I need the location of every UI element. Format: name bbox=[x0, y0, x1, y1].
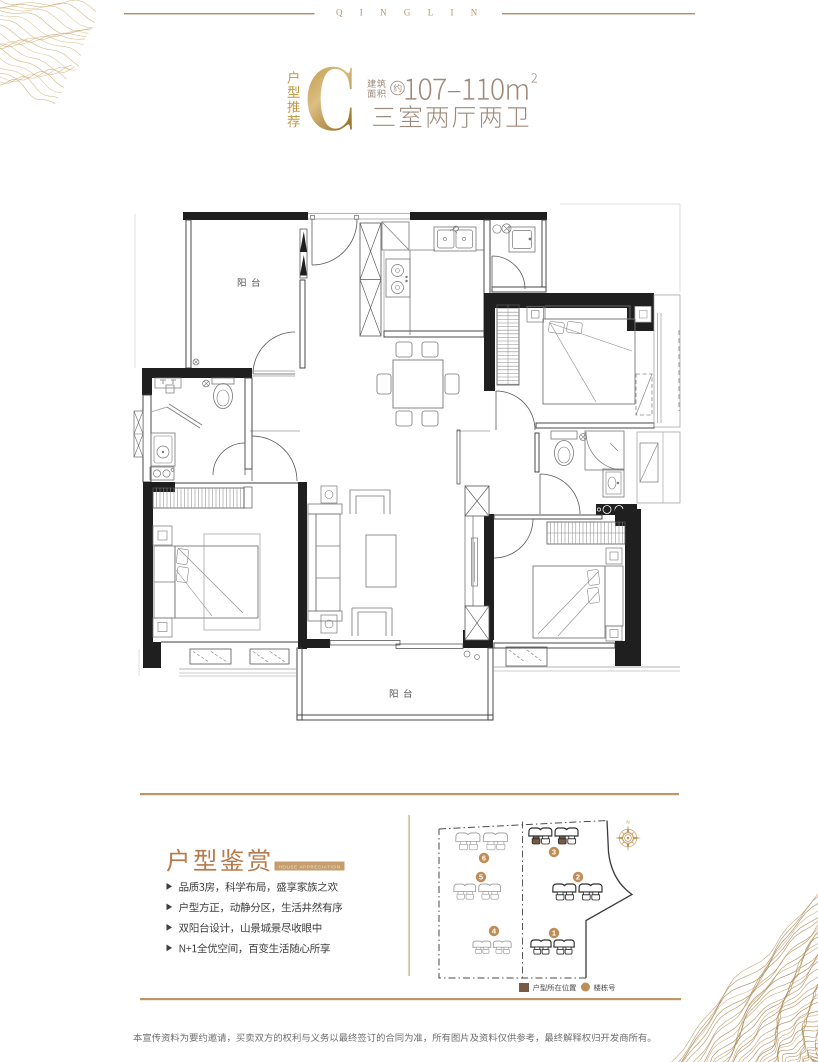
svg-text:HOUSE APPRECIATION: HOUSE APPRECIATION bbox=[278, 864, 340, 869]
svg-text:N: N bbox=[626, 820, 629, 825]
svg-text:5: 5 bbox=[479, 873, 483, 882]
svg-text:3: 3 bbox=[552, 848, 556, 857]
svg-text:2: 2 bbox=[576, 873, 580, 882]
svg-text:QINGLIN: QINGLIN bbox=[336, 8, 495, 18]
svg-text:1: 1 bbox=[552, 929, 556, 938]
svg-text:6: 6 bbox=[482, 854, 486, 863]
